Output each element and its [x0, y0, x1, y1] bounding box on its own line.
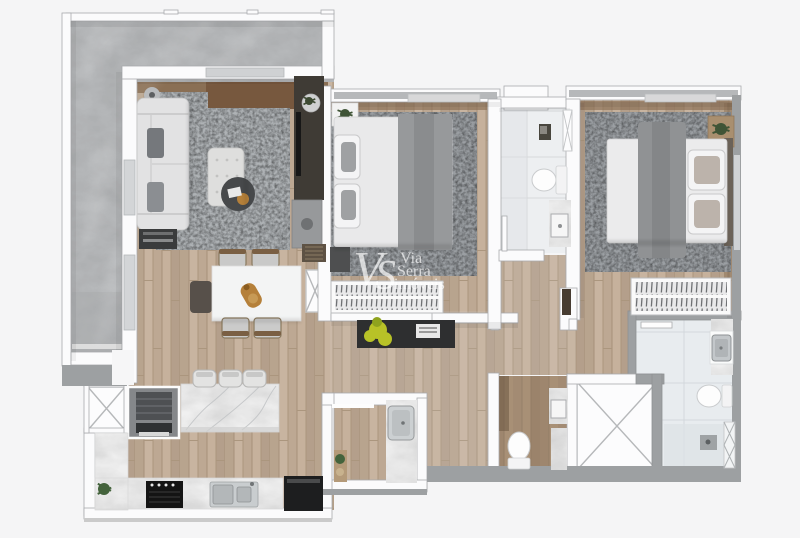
svg-text:imóveis: imóveis	[394, 276, 445, 293]
svg-text:S: S	[375, 253, 396, 299]
